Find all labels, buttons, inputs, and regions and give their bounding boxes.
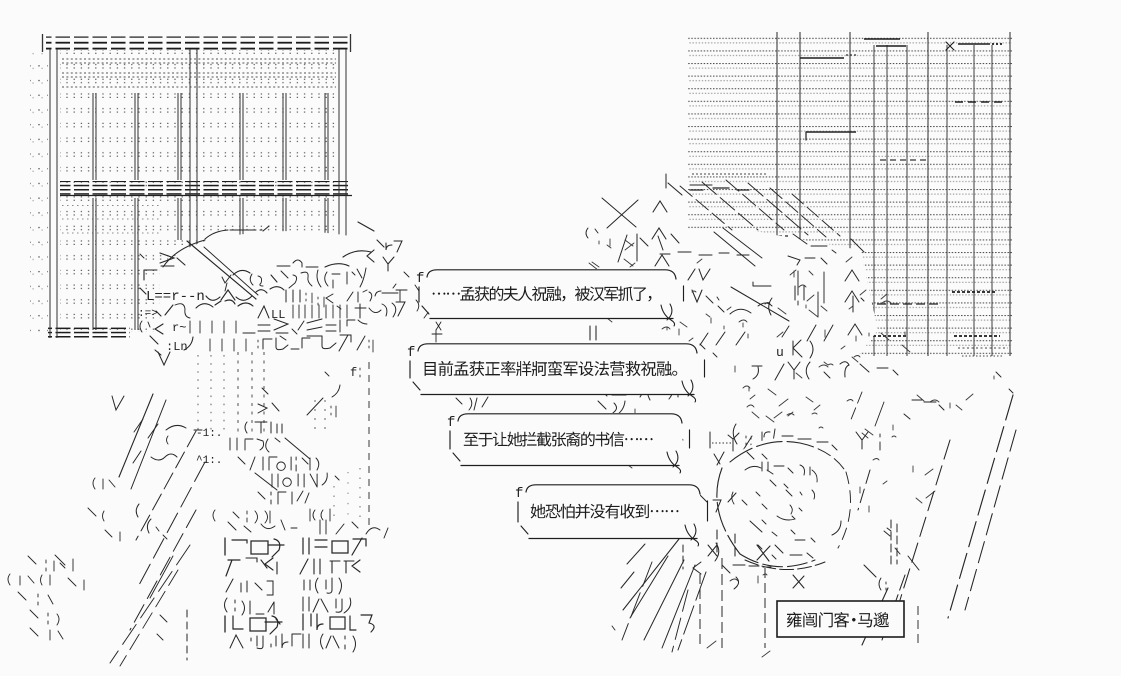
svg-text::=>: :=>	[138, 308, 158, 320]
svg-text:f: f	[416, 271, 424, 287]
svg-text:f: f	[447, 415, 455, 431]
svg-text:L==r--n: L==r--n	[146, 289, 205, 305]
svg-text:f: f	[515, 486, 523, 502]
svg-text:^1:.: ^1:.	[196, 455, 222, 467]
svg-text:-1:.: -1:.	[196, 428, 222, 440]
svg-text:r~: r~	[172, 321, 186, 335]
svg-text:LL: LL	[271, 308, 285, 322]
svg-text:u: u	[776, 345, 784, 360]
svg-text::Ln: :Ln	[166, 340, 188, 354]
svg-text:f: f	[350, 366, 357, 380]
svg-text:f: f	[407, 345, 415, 361]
